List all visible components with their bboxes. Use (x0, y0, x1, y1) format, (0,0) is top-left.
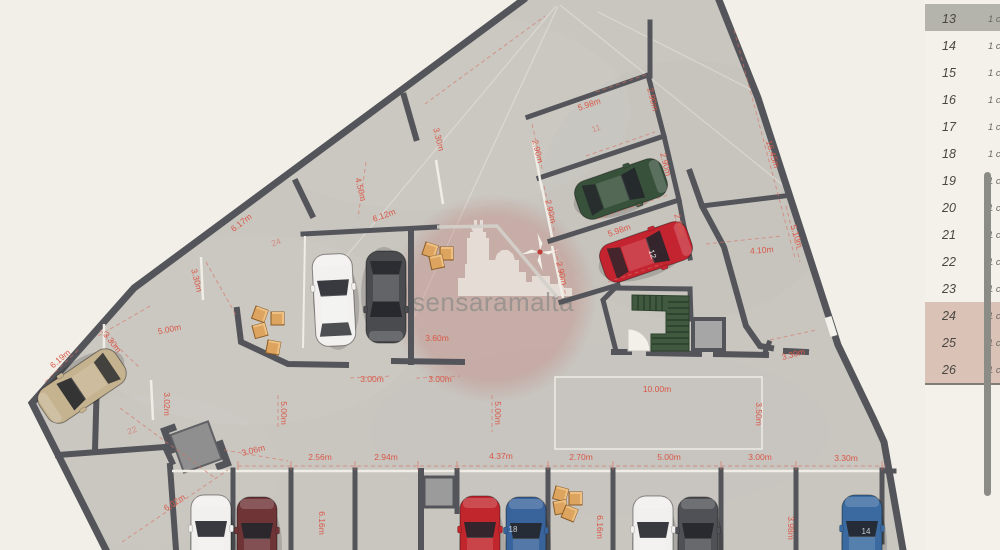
svg-text:sensaramalta: sensaramalta (412, 287, 574, 317)
svg-text:18: 18 (942, 147, 956, 161)
svg-text:13: 13 (942, 12, 956, 26)
svg-text:16: 16 (942, 93, 956, 107)
svg-text:15: 15 (942, 66, 956, 80)
svg-text:6.16m: 6.16m (317, 511, 327, 535)
svg-text:26: 26 (941, 363, 956, 377)
svg-text:21: 21 (941, 228, 956, 242)
svg-text:2.94m: 2.94m (374, 452, 398, 462)
svg-text:5.00m: 5.00m (279, 401, 289, 425)
svg-text:3.30m: 3.30m (834, 453, 858, 463)
svg-text:2.56m: 2.56m (308, 452, 332, 462)
svg-text:4.10m: 4.10m (750, 244, 774, 256)
svg-text:5.00m: 5.00m (493, 401, 503, 425)
svg-text:17: 17 (942, 120, 957, 134)
svg-text:3.50m: 3.50m (754, 402, 764, 426)
svg-text:3.00m: 3.00m (428, 374, 452, 384)
svg-text:6.16m: 6.16m (595, 515, 605, 539)
svg-text:1 c: 1 c (988, 41, 1000, 52)
svg-text:1 c: 1 c (988, 95, 1000, 106)
svg-text:3.00m: 3.00m (360, 374, 384, 384)
svg-text:23: 23 (941, 282, 956, 296)
svg-text:25: 25 (941, 336, 956, 350)
svg-text:4.37m: 4.37m (489, 451, 513, 461)
svg-text:1 c: 1 c (988, 149, 1000, 160)
svg-text:22: 22 (941, 255, 956, 269)
svg-text:10.00m: 10.00m (643, 384, 671, 394)
svg-text:14: 14 (942, 39, 956, 53)
svg-text:3.00m: 3.00m (748, 452, 772, 462)
svg-text:20: 20 (941, 201, 956, 215)
svg-text:5.00m: 5.00m (657, 452, 681, 462)
svg-text:3.60m: 3.60m (425, 333, 449, 343)
svg-text:1 c: 1 c (988, 68, 1000, 79)
svg-text:1 c: 1 c (988, 14, 1000, 25)
svg-text:3.02m: 3.02m (162, 392, 172, 416)
svg-text:1 c: 1 c (988, 122, 1000, 133)
svg-text:18: 18 (509, 525, 518, 534)
svg-text:14: 14 (862, 527, 871, 536)
svg-text:19: 19 (942, 174, 956, 188)
svg-text:24: 24 (941, 309, 956, 323)
svg-text:2.70m: 2.70m (569, 452, 593, 462)
svg-text:3.98m: 3.98m (786, 516, 796, 540)
